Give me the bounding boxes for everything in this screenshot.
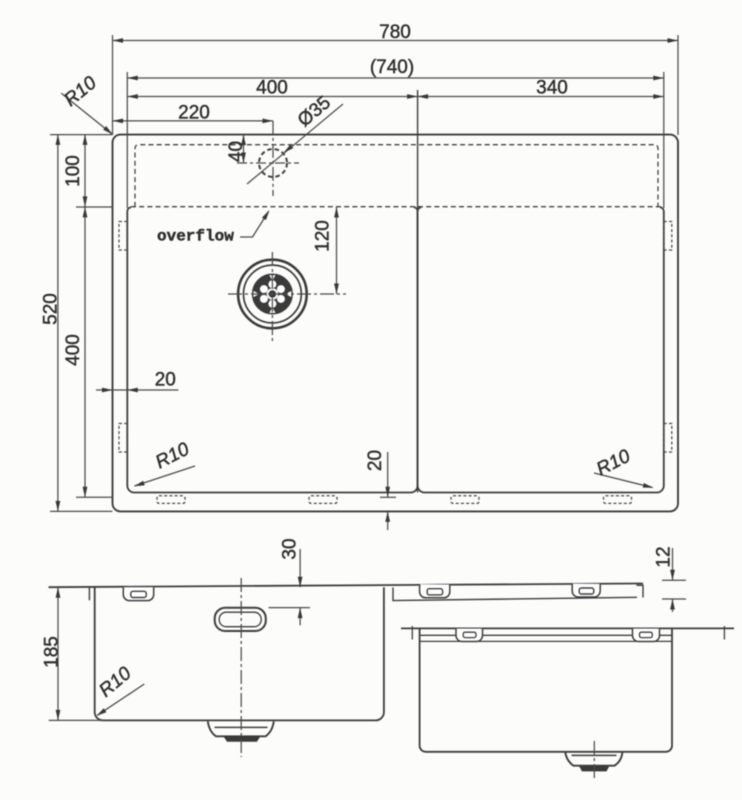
- svg-text:R10: R10: [593, 446, 634, 481]
- svg-text:220: 220: [178, 103, 210, 124]
- svg-text:400: 400: [256, 78, 288, 99]
- svg-text:340: 340: [536, 78, 568, 99]
- svg-text:40: 40: [226, 141, 247, 162]
- svg-text:(740): (740): [370, 57, 414, 78]
- svg-text:400: 400: [63, 334, 84, 366]
- svg-text:520: 520: [41, 293, 62, 325]
- svg-text:12: 12: [654, 546, 675, 567]
- svg-text:Ø35: Ø35: [294, 92, 335, 131]
- svg-text:780: 780: [379, 22, 411, 43]
- svg-text:185: 185: [42, 636, 63, 668]
- svg-text:20: 20: [155, 370, 176, 391]
- svg-text:100: 100: [63, 155, 84, 187]
- svg-text:R10: R10: [95, 663, 136, 702]
- svg-text:120: 120: [313, 220, 334, 252]
- svg-text:20: 20: [365, 450, 386, 471]
- svg-text:R10: R10: [60, 72, 101, 111]
- svg-text:30: 30: [280, 538, 301, 559]
- svg-text:overflow: overflow: [157, 228, 234, 246]
